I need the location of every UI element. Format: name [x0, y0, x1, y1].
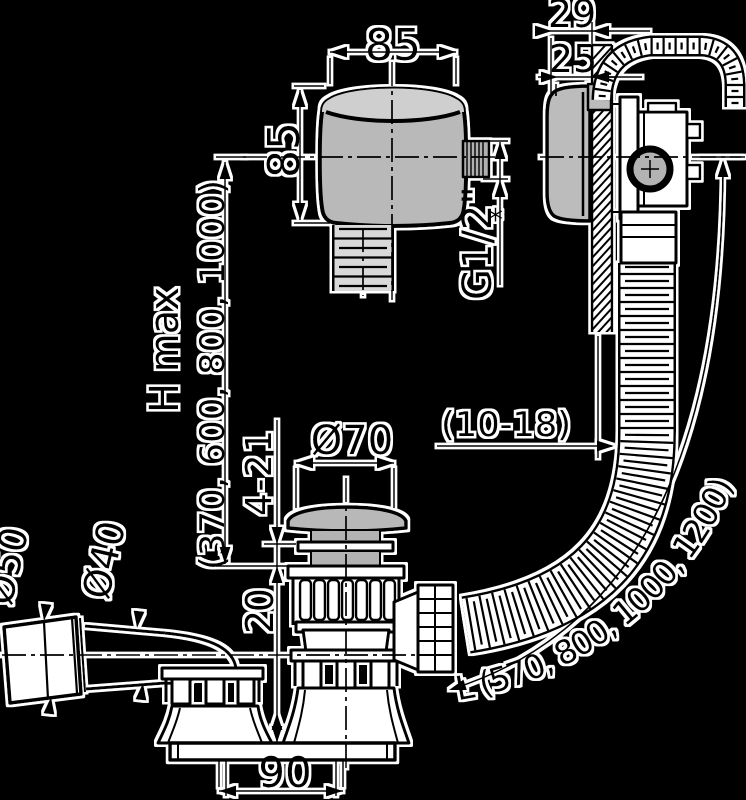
dimension-arrow	[272, 726, 283, 743]
crown-slot	[328, 580, 339, 620]
overflow-fitting-side-view	[547, 84, 700, 263]
dim-elbow-outer: Ø50	[0, 523, 37, 609]
dimension-arrow	[220, 162, 231, 179]
dim-height-left: 85	[259, 122, 310, 178]
dimension-arrow	[295, 90, 306, 107]
dimension-arrow	[330, 47, 347, 58]
dimension-arrow	[219, 786, 236, 797]
dim-elbow-inner: Ø40	[74, 517, 134, 603]
left-nut-tooth	[238, 679, 254, 704]
dim-stroke-range: 4-21	[239, 430, 280, 516]
dimension-arrow	[597, 441, 614, 452]
crown-slot	[356, 580, 367, 620]
dimension-arrow	[295, 203, 306, 220]
clamp-tab-upper	[687, 124, 700, 138]
dim-plug-diameter: Ø70	[311, 418, 393, 464]
body-top-step	[648, 103, 676, 112]
left-nut-tooth	[206, 679, 224, 704]
h-max-label: H max	[142, 287, 188, 413]
crown-slot	[314, 580, 325, 620]
crown-slot	[342, 580, 353, 620]
dim-width-top: 85	[365, 20, 421, 71]
dimension-arrow	[272, 566, 283, 583]
left-nut-rim	[162, 668, 263, 679]
dimension-arrow	[439, 47, 456, 58]
technical-drawing: 85 85 G1/2" * 29 25 H max (370, 600, 800…	[0, 0, 746, 800]
dimension-arrow	[718, 160, 729, 177]
dimension-arrow	[132, 610, 145, 628]
crown-slot	[370, 580, 381, 620]
dim-outlet-offset: 20	[238, 588, 282, 634]
dim-depth-total: 29	[548, 0, 596, 36]
elbow-socket	[4, 617, 81, 703]
center-nut-tooth	[371, 661, 389, 688]
dimension-arrow	[495, 142, 506, 159]
plug-cap	[288, 507, 406, 531]
left-nut-tooth	[172, 679, 190, 704]
panel-thickness-label: (10-18)	[441, 405, 571, 445]
dimension-arrow	[326, 786, 343, 797]
clamp-tab-lower	[687, 165, 700, 179]
elbow-pipe	[85, 626, 165, 689]
dim-depth-recess: 25	[549, 37, 597, 81]
crown-slot	[300, 580, 311, 620]
dimension-arrow	[272, 527, 283, 544]
hatch-line	[592, 344, 612, 366]
dim-flange-diameter: 90	[258, 748, 311, 797]
center-nut-tooth	[303, 661, 321, 688]
footnote-asterisk: *	[488, 203, 503, 238]
rim-hose	[595, 38, 743, 107]
h-max-values: (370, 600, 800, 1000)	[193, 180, 233, 570]
outlet-cone	[394, 592, 418, 670]
hatch-line	[592, 335, 612, 357]
